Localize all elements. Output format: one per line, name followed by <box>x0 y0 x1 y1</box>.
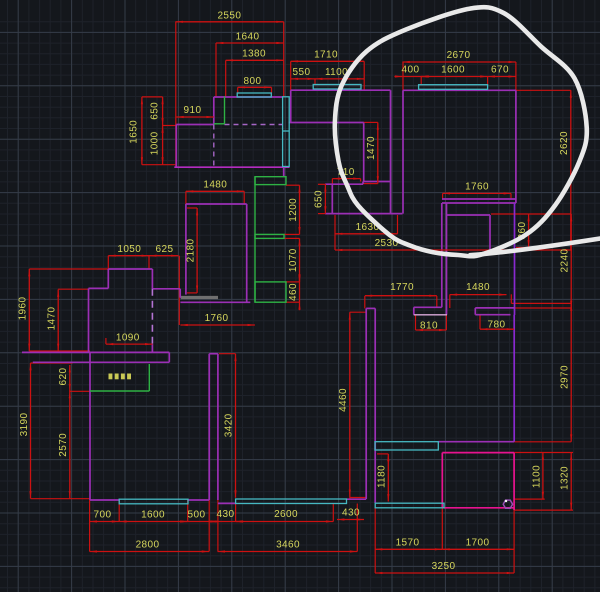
svg-text:625: 625 <box>156 244 174 255</box>
svg-text:1650: 1650 <box>129 120 140 144</box>
svg-text:810: 810 <box>420 320 438 331</box>
svg-text:1090: 1090 <box>116 332 140 343</box>
svg-text:1380: 1380 <box>242 49 266 60</box>
svg-text:2970: 2970 <box>559 365 570 389</box>
svg-text:1640: 1640 <box>236 32 260 43</box>
svg-text:2570: 2570 <box>58 433 69 457</box>
svg-text:1600: 1600 <box>141 510 165 521</box>
svg-text:1470: 1470 <box>47 307 58 331</box>
svg-text:620: 620 <box>58 368 69 386</box>
svg-text:2180: 2180 <box>185 238 196 262</box>
svg-text:910: 910 <box>184 105 202 116</box>
svg-text:3460: 3460 <box>276 539 300 550</box>
svg-text:650: 650 <box>314 190 325 208</box>
svg-text:1480: 1480 <box>466 282 490 293</box>
svg-text:1700: 1700 <box>466 538 490 549</box>
svg-text:1480: 1480 <box>203 180 227 191</box>
svg-text:1570: 1570 <box>396 538 420 549</box>
svg-text:500: 500 <box>188 510 206 521</box>
svg-text:1100: 1100 <box>531 465 542 488</box>
svg-text:650: 650 <box>150 102 161 120</box>
svg-text:3250: 3250 <box>432 561 456 572</box>
svg-text:2620: 2620 <box>559 131 570 155</box>
svg-text:1710: 1710 <box>314 49 338 60</box>
svg-text:1180: 1180 <box>377 465 388 488</box>
svg-text:1770: 1770 <box>390 282 414 293</box>
svg-text:1070: 1070 <box>288 248 299 272</box>
svg-text:1320: 1320 <box>560 466 571 490</box>
svg-text:1200: 1200 <box>288 198 299 222</box>
svg-text:1470: 1470 <box>366 136 377 160</box>
svg-text:2550: 2550 <box>217 11 241 22</box>
svg-text:460: 460 <box>288 283 299 301</box>
svg-text:4460: 4460 <box>338 388 349 412</box>
svg-text:2800: 2800 <box>136 540 160 551</box>
svg-text:670: 670 <box>491 65 509 76</box>
svg-text:1000: 1000 <box>150 131 161 155</box>
svg-text:2240: 2240 <box>560 249 571 273</box>
svg-text:700: 700 <box>94 510 112 521</box>
svg-text:1960: 1960 <box>18 297 29 321</box>
svg-text:3190: 3190 <box>19 413 30 437</box>
svg-text:3420: 3420 <box>224 413 235 437</box>
svg-text:430: 430 <box>217 509 235 520</box>
svg-text:1050: 1050 <box>117 244 141 255</box>
svg-text:550: 550 <box>293 67 311 78</box>
svg-text:1760: 1760 <box>205 313 229 324</box>
svg-text:1600: 1600 <box>441 65 465 76</box>
svg-text:400: 400 <box>402 65 420 76</box>
svg-text:2600: 2600 <box>274 509 298 520</box>
svg-text:430: 430 <box>342 508 360 519</box>
svg-text:1760: 1760 <box>465 182 489 193</box>
svg-text:2670: 2670 <box>447 50 471 61</box>
svg-text:800: 800 <box>244 76 262 87</box>
svg-text:780: 780 <box>488 320 506 331</box>
